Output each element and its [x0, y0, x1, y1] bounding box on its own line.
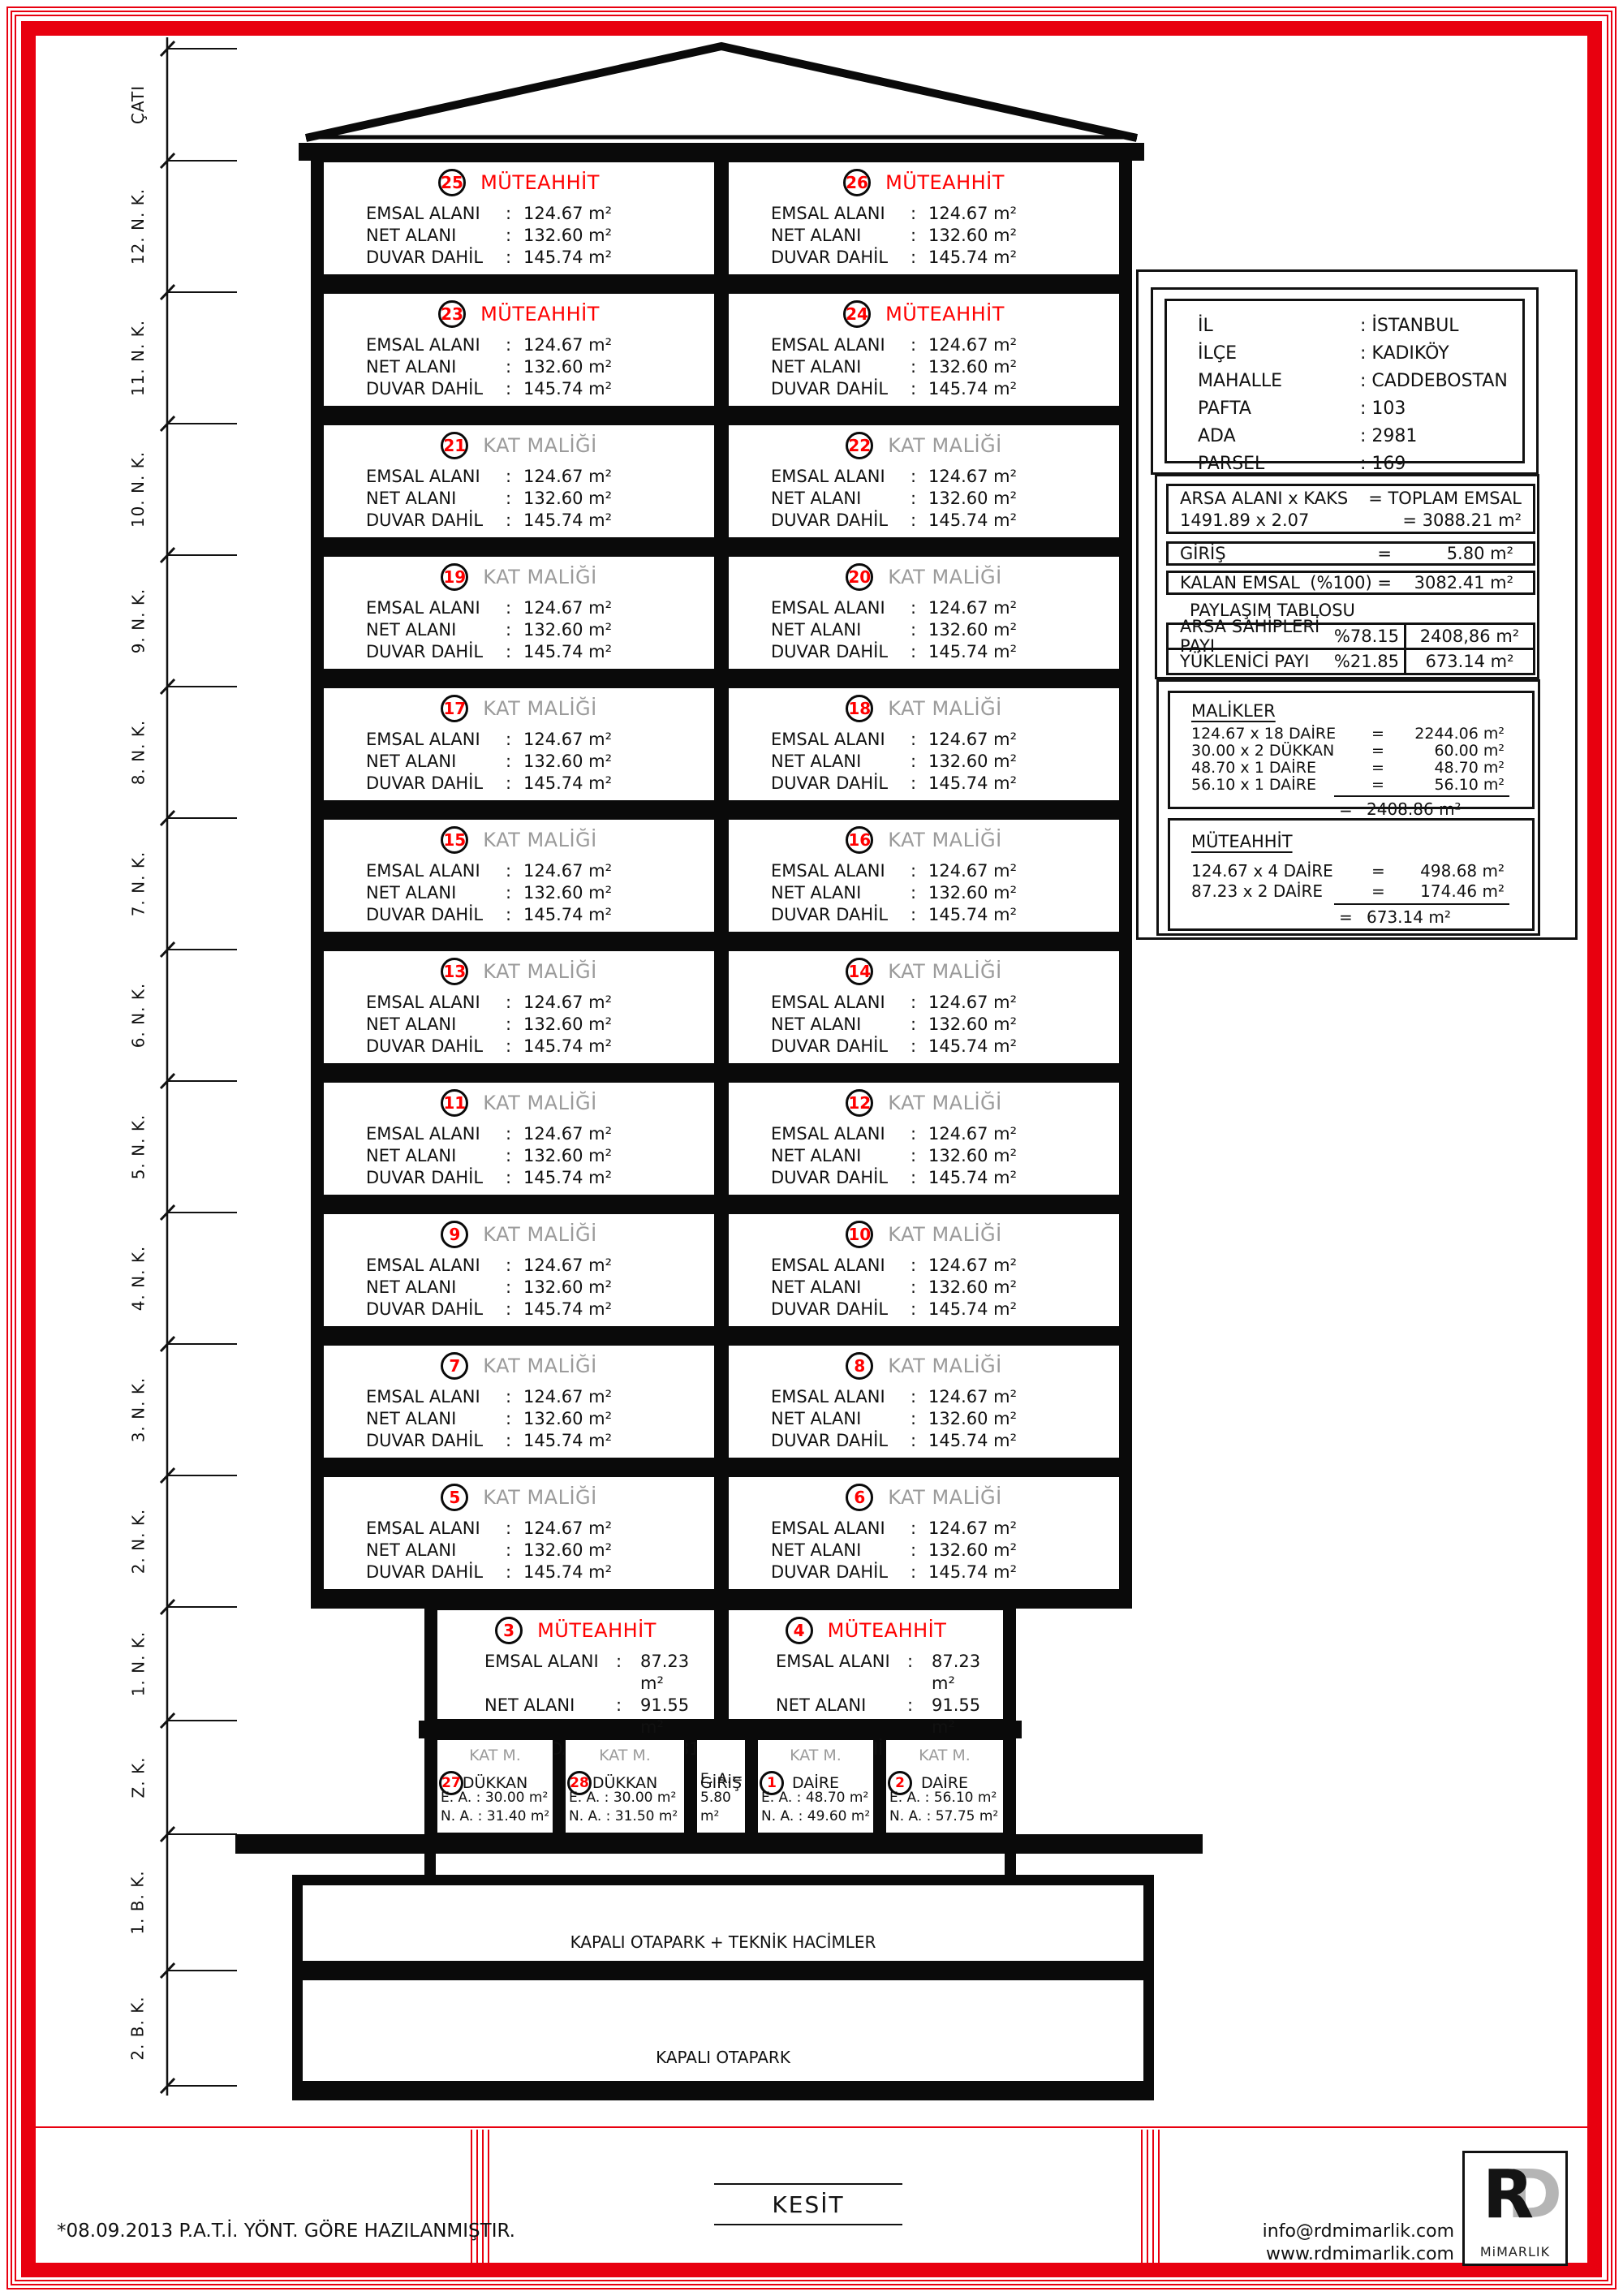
area-value: 124.67 m²: [928, 334, 1119, 356]
area-value: 132.60 m²: [928, 1540, 1119, 1562]
area-line: DUVAR DAHİL:145.74 m²: [366, 1167, 714, 1189]
share-formula: 87.23 x 2 DAİRE: [1191, 881, 1371, 902]
area-line: DUVAR DAHİL:145.74 m²: [366, 378, 714, 400]
area-label: EMSAL ALANI: [366, 1386, 506, 1408]
area-label: DUVAR DAHİL: [771, 510, 911, 532]
area-value: 132.60 m²: [928, 1145, 1119, 1167]
area-line: DUVAR DAHİL:145.74 m²: [771, 510, 1119, 532]
dimension-label-text: Z. K.: [128, 1757, 148, 1798]
colon: :: [911, 641, 928, 663]
area-value: 132.60 m²: [928, 1014, 1119, 1036]
dimension-label-text: 1. B. K.: [128, 1870, 148, 1934]
area-value: 124.67 m²: [523, 466, 714, 488]
ground-unit-areas: E. A. : 30.00 m²N. A. : 31.40 m²: [441, 1789, 551, 1826]
unit-number-badge: 22: [846, 432, 873, 459]
area-line: EMSAL ALANI:124.67 m²: [366, 860, 714, 882]
area-label: DUVAR DAHİL: [366, 378, 506, 400]
area-value: 132.60 m²: [928, 225, 1119, 247]
location-value: : İSTANBUL: [1360, 312, 1459, 340]
kalan-label: KALAN EMSAL: [1180, 573, 1310, 592]
unit-box: 14KAT MALİĞİEMSAL ALANI:124.67 m²NET ALA…: [727, 950, 1121, 1065]
area-value: 124.67 m²: [523, 860, 714, 882]
floor-slab: [311, 1065, 1132, 1083]
area-value: 124.67 m²: [928, 1518, 1119, 1540]
unit-header: 26MÜTEAHHİT: [729, 167, 1119, 198]
dimension-label: 2. B. K.: [117, 1971, 159, 2086]
area-line: EMSAL ALANI:124.67 m²: [771, 1123, 1119, 1145]
unit-box: 13KAT MALİĞİEMSAL ALANI:124.67 m²NET ALA…: [322, 950, 716, 1065]
unit-areas: EMSAL ALANI:124.67 m²NET ALANI:132.60 m²…: [366, 203, 714, 269]
unit-owner-label: KAT MALİĞİ: [888, 1223, 1001, 1246]
giris-label: GİRİŞ: [1180, 544, 1377, 563]
area-value: 132.60 m²: [928, 751, 1119, 773]
area-line: NET ALANI:132.60 m²: [771, 751, 1119, 773]
area-line: NET ALANI:91.55 m²: [776, 1695, 1003, 1738]
malikler-box: MALİKLER 124.67 x 18 DAİRE=2244.06 m²30.…: [1168, 691, 1535, 809]
ground-cell-header: KAT M.: [566, 1747, 684, 1766]
colon: :: [506, 1518, 523, 1540]
unit-box: 8KAT MALİĞİEMSAL ALANI:124.67 m²NET ALAN…: [727, 1344, 1121, 1459]
area-value: 132.60 m²: [523, 882, 714, 904]
roof-outline: [306, 46, 1137, 138]
unit-owner-label: KAT MALİĞİ: [888, 1092, 1001, 1114]
area-label: EMSAL ALANI: [771, 466, 911, 488]
share-formula: 56.10 x 1 DAİRE: [1191, 777, 1371, 794]
area-line: EMSAL ALANI:124.67 m²: [366, 597, 714, 619]
unit-box: 25MÜTEAHHİTEMSAL ALANI:124.67 m²NET ALAN…: [322, 161, 716, 276]
unit-owner-label: KAT MALİĞİ: [483, 1223, 596, 1246]
unit-header: 6KAT MALİĞİ: [729, 1482, 1119, 1513]
area-value: 145.74 m²: [523, 247, 714, 269]
unit-box: 10KAT MALİĞİEMSAL ALANI:124.67 m²NET ALA…: [727, 1213, 1121, 1328]
unit-number-badge: 16: [846, 826, 873, 854]
unit-owner-label: KAT MALİĞİ: [483, 1355, 596, 1377]
unit-number-badge: 24: [843, 300, 871, 328]
basement-slab: [303, 1961, 1143, 1980]
colon: :: [506, 904, 523, 926]
area-line: NET ALANI:132.60 m²: [771, 1408, 1119, 1430]
colon: :: [911, 1123, 928, 1145]
area-value: 145.74 m²: [523, 1167, 714, 1189]
dimension-label-text: 7. N. K.: [128, 851, 148, 917]
share-eq: =: [1371, 881, 1399, 902]
unit-owner-label: KAT MALİĞİ: [483, 960, 596, 983]
share-formula: 124.67 x 18 DAİRE: [1191, 726, 1371, 743]
unit-header: 21KAT MALİĞİ: [324, 430, 714, 461]
area-line: EMSAL ALANI:124.67 m²: [366, 1386, 714, 1408]
unit-number-badge: 26: [843, 169, 871, 196]
area-value: 132.60 m²: [928, 356, 1119, 378]
unit-header: 5KAT MALİĞİ: [324, 1482, 714, 1513]
area-value: 145.74 m²: [928, 773, 1119, 795]
unit-number-badge: 19: [441, 563, 468, 591]
unit-box: 23MÜTEAHHİTEMSAL ALANI:124.67 m²NET ALAN…: [322, 292, 716, 407]
colon: :: [911, 1277, 928, 1299]
unit-number-badge: 18: [846, 695, 873, 722]
basement-1-label: KAPALI OTAPARK + TEKNİK HACİMLER: [303, 1932, 1143, 1952]
area-value: 124.67 m²: [928, 1386, 1119, 1408]
ground-cell: GİRİŞE. A.=5.80 m²: [695, 1738, 747, 1834]
unit-areas: EMSAL ALANI:124.67 m²NET ALANI:132.60 m²…: [771, 203, 1119, 269]
area-label: EMSAL ALANI: [366, 992, 506, 1014]
unit-header: 10KAT MALİĞİ: [729, 1219, 1119, 1250]
unit-areas: EMSAL ALANI:124.67 m²NET ALANI:132.60 m²…: [771, 597, 1119, 663]
area-label: DUVAR DAHİL: [771, 247, 911, 269]
unit-box: 24MÜTEAHHİTEMSAL ALANI:124.67 m²NET ALAN…: [727, 292, 1121, 407]
dimension-label: 8. N. K.: [117, 687, 159, 818]
unit-owner-label: KAT MALİĞİ: [888, 1486, 1001, 1509]
location-rows: İL: İSTANBULİLÇE: KADIKÖYMAHALLE: CADDEB…: [1165, 299, 1525, 463]
colon: :: [911, 860, 928, 882]
area-label: DUVAR DAHİL: [366, 510, 506, 532]
area-value: 124.67 m²: [928, 729, 1119, 751]
unit-header: 11KAT MALİĞİ: [324, 1088, 714, 1118]
unit-number-badge: 10: [846, 1221, 873, 1248]
area-line: EMSAL ALANI:124.67 m²: [771, 1386, 1119, 1408]
colon: :: [911, 729, 928, 751]
colon: :: [506, 1145, 523, 1167]
ground-unit-areas: E. A. : 30.00 m²N. A. : 31.50 m²: [569, 1789, 682, 1826]
dimension-label: 10. N. K.: [117, 424, 159, 555]
area-line: NET ALANI:132.60 m²: [366, 751, 714, 773]
area-label: EMSAL ALANI: [771, 203, 911, 225]
colon: :: [506, 992, 523, 1014]
colon: :: [506, 1123, 523, 1145]
colon: :: [911, 378, 928, 400]
area-value: 124.67 m²: [523, 1255, 714, 1277]
colon: :: [506, 1167, 523, 1189]
unit-number-badge: 14: [846, 958, 873, 985]
area-line: DUVAR DAHİL:145.74 m²: [366, 641, 714, 663]
area-value: 124.67 m²: [523, 334, 714, 356]
dimension-label-text: ÇATI: [128, 85, 148, 124]
unit-areas: EMSAL ALANI:124.67 m²NET ALANI:132.60 m²…: [771, 1518, 1119, 1583]
unit-box: 26MÜTEAHHİTEMSAL ALANI:124.67 m²NET ALAN…: [727, 161, 1121, 276]
arsa-kaks-values: 1491.89 x 2.07: [1180, 510, 1309, 532]
dimension-label: Z. K.: [117, 1721, 159, 1834]
area-value: 87.23 m²: [932, 1651, 1003, 1695]
colon: :: [506, 510, 523, 532]
kalan-emsal-row: KALAN EMSAL (%100) = 3082.41 m²: [1166, 571, 1535, 595]
share-row: 87.23 x 2 DAİRE=174.46 m²: [1170, 881, 1532, 902]
area-value: 145.74 m²: [523, 510, 714, 532]
colon: :: [506, 334, 523, 356]
colon: :: [506, 619, 523, 641]
colon: :: [911, 1540, 928, 1562]
colon: :: [911, 1430, 928, 1452]
unit-areas: EMSAL ALANI:124.67 m²NET ALANI:132.60 m²…: [771, 1123, 1119, 1189]
unit-header: 7KAT MALİĞİ: [324, 1350, 714, 1381]
area-label: NET ALANI: [366, 1540, 506, 1562]
colon: :: [506, 1255, 523, 1277]
unit-number-badge: 12: [846, 1089, 873, 1117]
area-label: EMSAL ALANI: [366, 729, 506, 751]
area-value: 132.60 m²: [523, 1277, 714, 1299]
colon: :: [911, 773, 928, 795]
area-line: NET ALANI:132.60 m²: [366, 1014, 714, 1036]
area-value: 132.60 m²: [928, 1277, 1119, 1299]
area-label: NET ALANI: [366, 1014, 506, 1036]
colon: :: [911, 1518, 928, 1540]
rd-mimarlik-logo: D R MiMARLIK: [1462, 2151, 1568, 2266]
unit-box: 18KAT MALİĞİEMSAL ALANI:124.67 m²NET ALA…: [727, 687, 1121, 802]
giris-row: GİRİŞ = 5.80 m²: [1166, 541, 1535, 566]
colon: :: [911, 1167, 928, 1189]
ground-slab: [235, 1834, 1203, 1854]
unit-owner-label: MÜTEAHHİT: [828, 1619, 947, 1642]
area-label: NET ALANI: [771, 1408, 911, 1430]
colon: :: [911, 1145, 928, 1167]
paylasim-row: YÜKLENİCİ PAYI%21.85673.14 m²: [1169, 648, 1533, 673]
contact-web: www.rdmimarlik.com: [1250, 2243, 1454, 2266]
colon: :: [506, 488, 523, 510]
unit-header: 24MÜTEAHHİT: [729, 299, 1119, 330]
area-label: EMSAL ALANI: [771, 1518, 911, 1540]
paylasim-row: ARSA SAHİPLERİ PAYI%78.152408,86 m²: [1169, 625, 1533, 648]
unit-owner-label: KAT MALİĞİ: [483, 566, 596, 588]
area-value: 124.67 m²: [523, 597, 714, 619]
area-label: NET ALANI: [771, 488, 911, 510]
unit-box: 11KAT MALİĞİEMSAL ALANI:124.67 m²NET ALA…: [322, 1081, 716, 1196]
area-value: 124.67 m²: [928, 992, 1119, 1014]
area-value: 145.74 m²: [523, 1036, 714, 1058]
unit-box: 17KAT MALİĞİEMSAL ALANI:124.67 m²NET ALA…: [322, 687, 716, 802]
area-label: DUVAR DAHİL: [366, 1299, 506, 1320]
unit-owner-label: KAT MALİĞİ: [888, 1355, 1001, 1377]
dimension-label-text: 5. N. K.: [128, 1114, 148, 1180]
unit-box: 20KAT MALİĞİEMSAL ALANI:124.67 m²NET ALA…: [727, 555, 1121, 670]
unit-header: 16KAT MALİĞİ: [729, 825, 1119, 855]
unit-box: 3MÜTEAHHİTEMSAL ALANI:87.23 m²NET ALANI:…: [436, 1609, 716, 1721]
colon: :: [506, 203, 523, 225]
area-label: EMSAL ALANI: [366, 597, 506, 619]
colon: :: [506, 773, 523, 795]
unit-header: 12KAT MALİĞİ: [729, 1088, 1119, 1118]
area-label: NET ALANI: [484, 1695, 616, 1738]
area-label: DUVAR DAHİL: [771, 1036, 911, 1058]
area-line: DUVAR DAHİL:145.74 m²: [771, 904, 1119, 926]
dimension-label-text: 2. B. K.: [128, 1996, 148, 2060]
area-line: EMSAL ALANI:124.67 m²: [366, 729, 714, 751]
location-row: İLÇE: KADIKÖY: [1198, 340, 1522, 368]
footer-divider-right: [1141, 2130, 1160, 2263]
unit-areas: EMSAL ALANI:124.67 m²NET ALANI:132.60 m²…: [771, 1255, 1119, 1320]
colon: :: [911, 619, 928, 641]
info-panel: İL: İSTANBULİLÇE: KADIKÖYMAHALLE: CADDEB…: [1136, 269, 1578, 940]
area-label: DUVAR DAHİL: [771, 1299, 911, 1320]
unit-areas: EMSAL ALANI:124.67 m²NET ALANI:132.60 m²…: [366, 334, 714, 400]
area-value: 132.60 m²: [523, 225, 714, 247]
area-value: 145.74 m²: [928, 510, 1119, 532]
area-line: DUVAR DAHİL:145.74 m²: [366, 904, 714, 926]
area-label: NET ALANI: [771, 1145, 911, 1167]
area-line: DUVAR DAHİL:145.74 m²: [771, 1036, 1119, 1058]
unit-number-badge: 25: [438, 169, 466, 196]
area-label: NET ALANI: [366, 488, 506, 510]
share-formula: 48.70 x 1 DAİRE: [1191, 760, 1371, 777]
share-value: 498.68 m²: [1399, 861, 1505, 881]
location-label: İL: [1198, 312, 1360, 340]
area-line: DUVAR DAHİL:145.74 m²: [771, 773, 1119, 795]
ground-unit-areas: E. A.=5.80 m²: [700, 1770, 743, 1826]
area-value: 145.74 m²: [928, 378, 1119, 400]
structural-wall: [424, 1854, 436, 1875]
area-value: 124.67 m²: [523, 992, 714, 1014]
area-label: NET ALANI: [366, 356, 506, 378]
area-line: EMSAL ALANI:124.67 m²: [366, 334, 714, 356]
paylasim-name-cell: ARSA SAHİPLERİ PAYI%78.15: [1169, 625, 1406, 648]
unit-box: 7KAT MALİĞİEMSAL ALANI:124.67 m²NET ALAN…: [322, 1344, 716, 1459]
ground-cell-header: KAT M.: [886, 1747, 1003, 1766]
unit-owner-label: KAT MALİĞİ: [888, 697, 1001, 720]
colon: :: [506, 1430, 523, 1452]
dimension-label: 4. N. K.: [117, 1213, 159, 1344]
colon: :: [911, 203, 928, 225]
area-label: EMSAL ALANI: [776, 1651, 907, 1695]
area-line: DUVAR DAHİL:145.74 m²: [771, 1299, 1119, 1320]
unit-box: 6KAT MALİĞİEMSAL ALANI:124.67 m²NET ALAN…: [727, 1475, 1121, 1591]
area-line: NET ALANI:91.55 m²: [484, 1695, 714, 1738]
dimension-label-text: 9. N. K.: [128, 588, 148, 654]
unit-header: 3MÜTEAHHİT: [437, 1615, 714, 1646]
emsal-calc-box: ARSA ALANI x KAKS = TOPLAM EMSAL 1491.89…: [1155, 474, 1539, 679]
dimension-label: 12. N. K.: [117, 161, 159, 292]
area-label: EMSAL ALANI: [771, 1386, 911, 1408]
share-row: 30.00 x 2 DÜKKAN=60.00 m²: [1170, 743, 1532, 760]
area-line: NET ALANI:132.60 m²: [771, 1014, 1119, 1036]
colon: :: [506, 1299, 523, 1320]
paylasim-name-cell: YÜKLENİCİ PAYI%21.85: [1169, 650, 1406, 673]
giris-eq: =: [1377, 544, 1392, 563]
area-value: 132.60 m²: [928, 619, 1119, 641]
area-label: NET ALANI: [366, 1277, 506, 1299]
area-label: NET ALANI: [771, 751, 911, 773]
footer-divider-left: [471, 2130, 490, 2263]
colon: :: [506, 597, 523, 619]
area-label: EMSAL ALANI: [771, 992, 911, 1014]
giris-value: 5.80 m²: [1392, 544, 1522, 563]
dimension-label: ÇATI: [117, 49, 159, 161]
share-value: 174.46 m²: [1399, 881, 1505, 902]
ground-area-line: E. A. : 30.00 m²: [441, 1789, 551, 1807]
colon: :: [506, 751, 523, 773]
location-value: : CADDEBOSTAN: [1360, 368, 1508, 395]
share-formula: 124.67 x 4 DAİRE: [1191, 861, 1371, 881]
unit-owner-label: KAT MALİĞİ: [483, 1486, 596, 1509]
area-line: EMSAL ALANI:124.67 m²: [771, 1255, 1119, 1277]
area-line: EMSAL ALANI:124.67 m²: [771, 992, 1119, 1014]
area-label: DUVAR DAHİL: [366, 247, 506, 269]
location-box: İL: İSTANBULİLÇE: KADIKÖYMAHALLE: CADDEB…: [1151, 287, 1539, 475]
unit-areas: EMSAL ALANI:124.67 m²NET ALANI:132.60 m²…: [366, 597, 714, 663]
area-label: NET ALANI: [366, 225, 506, 247]
area-value: 132.60 m²: [928, 1408, 1119, 1430]
area-label: EMSAL ALANI: [366, 1123, 506, 1145]
basement-box: KAPALI OTAPARK + TEKNİK HACİMLER KAPALI …: [292, 1875, 1154, 2100]
share-eq: =: [1371, 777, 1399, 794]
unit-box: 5KAT MALİĞİEMSAL ALANI:124.67 m²NET ALAN…: [322, 1475, 716, 1591]
unit-areas: EMSAL ALANI:124.67 m²NET ALANI:132.60 m²…: [366, 860, 714, 926]
share-value: 56.10 m²: [1399, 777, 1505, 794]
kalan-value: 3082.41 m²: [1392, 573, 1522, 592]
ground-cell: KAT M.28DÜKKANE. A. : 30.00 m²N. A. : 31…: [564, 1738, 686, 1834]
area-line: EMSAL ALANI:124.67 m²: [366, 466, 714, 488]
unit-areas: EMSAL ALANI:124.67 m²NET ALANI:132.60 m²…: [771, 729, 1119, 795]
area-line: NET ALANI:132.60 m²: [771, 1277, 1119, 1299]
unit-areas: EMSAL ALANI:124.67 m²NET ALANI:132.60 m²…: [771, 466, 1119, 532]
unit-header: 14KAT MALİĞİ: [729, 956, 1119, 987]
area-value: 145.74 m²: [928, 1167, 1119, 1189]
colon: :: [616, 1695, 640, 1738]
floor-slab: [311, 1591, 1132, 1609]
colon: :: [506, 641, 523, 663]
area-value: 145.74 m²: [523, 773, 714, 795]
area-value: 124.67 m²: [523, 729, 714, 751]
area-label: DUVAR DAHİL: [771, 773, 911, 795]
share-formula: 30.00 x 2 DÜKKAN: [1191, 743, 1371, 760]
unit-number-badge: 17: [441, 695, 468, 722]
unit-box: 4MÜTEAHHİTEMSAL ALANI:87.23 m²NET ALANI:…: [727, 1609, 1005, 1721]
share-row: 124.67 x 18 DAİRE=2244.06 m²: [1170, 726, 1532, 743]
dimension-label-text: 10. N. K.: [128, 451, 148, 528]
area-line: DUVAR DAHİL:145.74 m²: [366, 773, 714, 795]
unit-box: 16KAT MALİĞİEMSAL ALANI:124.67 m²NET ALA…: [727, 818, 1121, 933]
area-line: NET ALANI:132.60 m²: [771, 488, 1119, 510]
area-line: NET ALANI:132.60 m²: [366, 1277, 714, 1299]
ground-area-line: N. A. : 49.60 m²: [761, 1807, 872, 1826]
colon: :: [911, 466, 928, 488]
dimension-label: 1. B. K.: [117, 1834, 159, 1971]
area-label: DUVAR DAHİL: [771, 641, 911, 663]
floor-slab: [311, 1328, 1132, 1346]
dimension-label: 5. N. K.: [117, 1081, 159, 1213]
area-label: NET ALANI: [771, 1540, 911, 1562]
unit-box: 22KAT MALİĞİEMSAL ALANI:124.67 m²NET ALA…: [727, 424, 1121, 539]
area-value: 145.74 m²: [928, 641, 1119, 663]
colon: :: [911, 247, 928, 269]
area-line: DUVAR DAHİL:145.74 m²: [366, 1562, 714, 1583]
area-label: NET ALANI: [771, 225, 911, 247]
unit-owner-label: KAT MALİĞİ: [483, 1092, 596, 1114]
location-row: ADA: 2981: [1198, 423, 1522, 450]
shares-box: MALİKLER 124.67 x 18 DAİRE=2244.06 m²30.…: [1156, 679, 1540, 936]
area-value: 132.60 m²: [523, 619, 714, 641]
area-line: DUVAR DAHİL:145.74 m²: [366, 1299, 714, 1320]
unit-header: 23MÜTEAHHİT: [324, 299, 714, 330]
dimension-label-text: 4. N. K.: [128, 1246, 148, 1312]
colon: :: [616, 1651, 640, 1695]
colon: :: [506, 1408, 523, 1430]
area-value: 124.67 m²: [928, 860, 1119, 882]
area-value: 132.60 m²: [523, 1540, 714, 1562]
dimension-label: 2. N. K.: [117, 1475, 159, 1607]
colon: :: [506, 356, 523, 378]
area-line: NET ALANI:132.60 m²: [366, 882, 714, 904]
unit-header: 25MÜTEAHHİT: [324, 167, 714, 198]
colon: :: [911, 882, 928, 904]
unit-owner-label: KAT MALİĞİ: [483, 829, 596, 851]
unit-owner-label: KAT MALİĞİ: [888, 829, 1001, 851]
area-value: 124.67 m²: [523, 1386, 714, 1408]
area-line: NET ALANI:132.60 m²: [771, 882, 1119, 904]
muteahhit-total-eq: =: [1339, 907, 1367, 927]
colon: :: [911, 1386, 928, 1408]
area-line: EMSAL ALANI:124.67 m²: [771, 729, 1119, 751]
unit-areas: EMSAL ALANI:124.67 m²NET ALANI:132.60 m²…: [366, 466, 714, 532]
share-eq: =: [1371, 743, 1399, 760]
location-row: MAHALLE: CADDEBOSTAN: [1198, 368, 1522, 395]
area-line: DUVAR DAHİL:145.74 m²: [771, 378, 1119, 400]
